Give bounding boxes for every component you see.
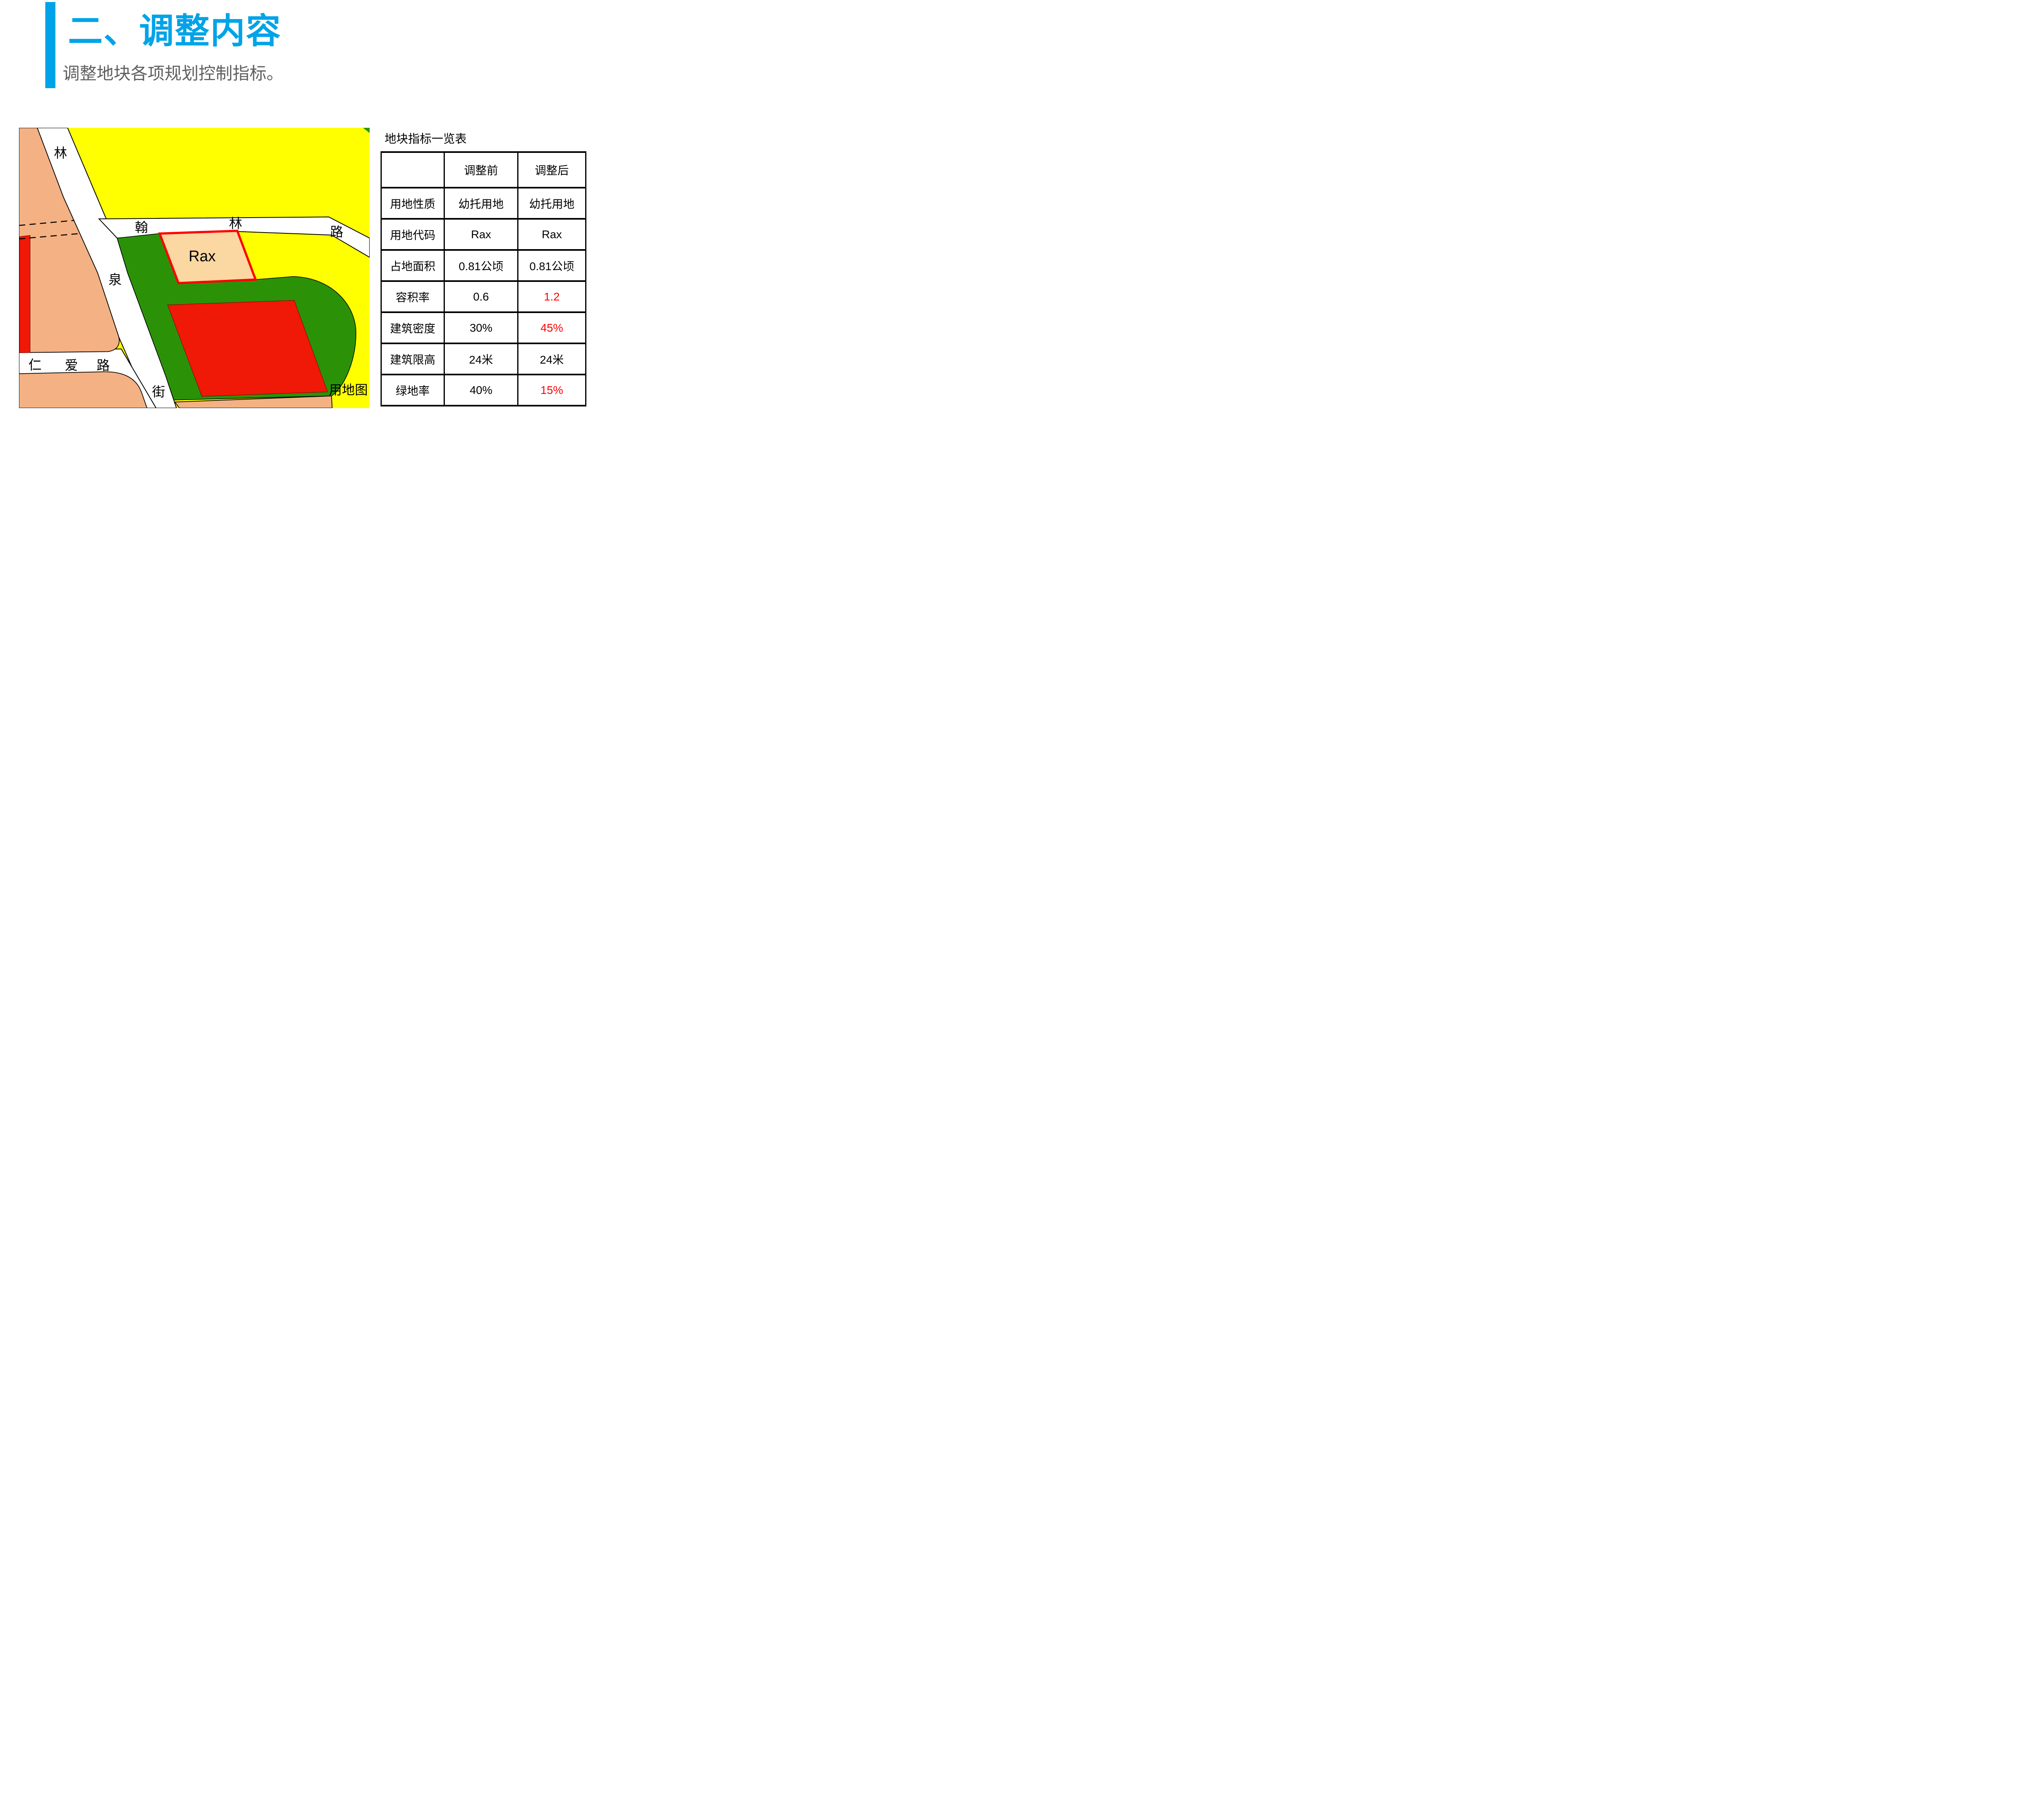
table-row: 容积率 0.6 1.2 (381, 281, 586, 312)
accent-bar (45, 2, 55, 88)
after-cell: 幼托用地 (518, 188, 586, 219)
land-use-map: 林 泉 街 翰 林 路 仁 爱 路 Rax 用地图 (19, 128, 370, 408)
after-cell: 15% (518, 375, 586, 406)
road-label-linquan-2: 泉 (108, 272, 122, 287)
table-row: 占地面积 0.81公顷 0.81公顷 (381, 250, 586, 281)
before-cell: 24米 (444, 343, 518, 375)
after-cell: 24米 (518, 343, 586, 375)
row-label-cell: 绿地率 (381, 375, 444, 406)
row-label-cell: 用地代码 (381, 219, 444, 250)
road-label-linquan-3: 街 (152, 385, 165, 399)
row-label-cell: 建筑密度 (381, 312, 444, 343)
col-header-blank (381, 152, 444, 188)
road-label-renai-3: 路 (97, 358, 110, 372)
before-cell: 0.6 (444, 281, 518, 312)
row-label-cell: 容积率 (381, 281, 444, 312)
before-cell: 0.81公顷 (444, 250, 518, 281)
land-use-map-svg: 林 泉 街 翰 林 路 仁 爱 路 Rax 用地图 (19, 128, 370, 408)
row-label-cell: 建筑限高 (381, 343, 444, 375)
after-cell: 1.2 (518, 281, 586, 312)
road-label-renai-2: 爱 (65, 358, 78, 372)
road-label-renai-1: 仁 (28, 358, 42, 372)
table-row: 建筑密度 30% 45% (381, 312, 586, 343)
before-cell: 40% (444, 375, 518, 406)
table-title: 地块指标一览表 (385, 129, 467, 146)
table-row: 用地性质 幼托用地 幼托用地 (381, 188, 586, 219)
table-row: 建筑限高 24米 24米 (381, 343, 586, 375)
region-orange-lower-left (19, 372, 147, 408)
after-cell: 0.81公顷 (518, 250, 586, 281)
road-label-hanlin-3: 路 (330, 225, 343, 239)
after-cell: Rax (518, 219, 586, 250)
row-label-cell: 占地面积 (381, 250, 444, 281)
red-strip-parcel (19, 235, 30, 353)
table-row: 用地代码 Rax Rax (381, 219, 586, 250)
after-cell: 45% (518, 312, 586, 343)
table-header-row: 调整前 调整后 (381, 152, 586, 188)
col-header-after: 调整后 (518, 152, 586, 188)
map-caption: 用地图 (329, 383, 368, 397)
col-header-before: 调整前 (444, 152, 518, 188)
page-subtitle: 调整地块各项规划控制指标。 (63, 64, 283, 83)
before-cell: 幼托用地 (444, 188, 518, 219)
page-title: 二、调整内容 (68, 13, 281, 49)
slide: { "slide": { "title": "二、调整内容", "subtitl… (0, 0, 607, 455)
indicator-table-body: 用地性质 幼托用地 幼托用地 用地代码 Rax Rax 占地面积 0.81公顷 … (381, 188, 586, 406)
row-label-cell: 用地性质 (381, 188, 444, 219)
road-label-hanlin-1: 翰 (135, 220, 148, 235)
rax-parcel-label: Rax (189, 248, 216, 265)
table-row: 绿地率 40% 15% (381, 375, 586, 406)
road-label-linquan-1: 林 (54, 146, 67, 161)
indicator-table: 调整前 调整后 用地性质 幼托用地 幼托用地 用地代码 Rax Rax 占地面积… (381, 151, 586, 406)
before-cell: 30% (444, 312, 518, 343)
before-cell: Rax (444, 219, 518, 250)
road-label-hanlin-2: 林 (229, 216, 242, 231)
